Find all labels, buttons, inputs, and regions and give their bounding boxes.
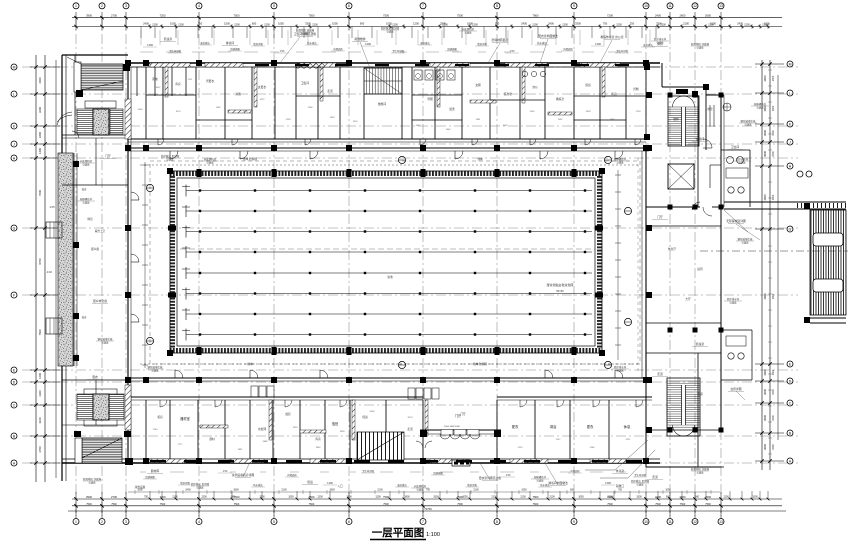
svg-text:器材库: 器材库 — [151, 469, 160, 473]
svg-text:1407: 1407 — [416, 125, 422, 127]
svg-text:钢化玻璃栏板: 钢化玻璃栏板 — [737, 237, 753, 241]
svg-text:1800: 1800 — [467, 22, 473, 26]
svg-text:卫生间详图: 卫生间详图 — [169, 49, 182, 53]
svg-text:L: L — [13, 92, 15, 96]
svg-text:8: 8 — [496, 4, 498, 8]
svg-text:5: 5 — [273, 520, 275, 524]
svg-text:内墙面砖: 内墙面砖 — [563, 47, 573, 51]
svg-text:池岸: 池岸 — [247, 362, 253, 366]
svg-text:钢化玻璃栏板: 钢化玻璃栏板 — [740, 119, 756, 123]
svg-text:器材室: 器材室 — [180, 416, 190, 421]
svg-text:13: 13 — [719, 520, 723, 524]
svg-text:水处理机房: 水处理机房 — [204, 157, 217, 161]
svg-text:750: 750 — [495, 22, 500, 26]
svg-text:1666: 1666 — [610, 119, 616, 121]
svg-text:楼梯间: 楼梯间 — [378, 102, 386, 106]
svg-text:男更衣: 男更衣 — [206, 79, 214, 83]
svg-text:值班: 值班 — [585, 83, 591, 87]
svg-text:走道: 走道 — [657, 372, 663, 376]
svg-text:J: J — [789, 140, 791, 144]
svg-text:J: J — [13, 142, 15, 146]
svg-text:1074: 1074 — [176, 111, 182, 113]
svg-text:泳池设备: 泳池设备 — [135, 485, 146, 489]
svg-text:1:50: 1:50 — [506, 474, 511, 477]
svg-text:内墙面砖: 内墙面砖 — [570, 469, 580, 473]
svg-text:1500: 1500 — [772, 444, 775, 450]
svg-text:1500: 1500 — [259, 496, 265, 499]
svg-text:10: 10 — [644, 520, 648, 524]
svg-text:1:50: 1:50 — [223, 470, 228, 473]
svg-text:3600: 3600 — [763, 369, 767, 375]
svg-text:2100: 2100 — [281, 489, 287, 492]
svg-text:值班室: 值班室 — [164, 37, 173, 41]
svg-text:7500: 7500 — [457, 13, 463, 17]
svg-text:7000: 7000 — [38, 190, 42, 196]
svg-text:6: 6 — [348, 520, 350, 524]
svg-text:1200: 1200 — [234, 23, 240, 26]
svg-text:器材: 器材 — [209, 437, 215, 441]
svg-text:面层做法: 面层做法 — [643, 43, 653, 47]
svg-text:1: 1 — [75, 4, 77, 8]
svg-text:1500: 1500 — [772, 389, 775, 395]
svg-text:前室: 前室 — [707, 107, 713, 111]
svg-text:教练室: 教练室 — [556, 97, 564, 101]
svg-text:7200: 7200 — [160, 13, 166, 17]
svg-text:3600: 3600 — [763, 293, 767, 299]
svg-text:1200: 1200 — [312, 23, 318, 26]
svg-text:7500: 7500 — [457, 503, 463, 506]
svg-text:3600: 3600 — [763, 130, 767, 136]
svg-text:7500: 7500 — [234, 503, 240, 506]
svg-text:3600: 3600 — [763, 415, 767, 421]
svg-text:L: L — [789, 91, 791, 95]
svg-text:G: G — [13, 226, 16, 230]
svg-text:1111: 1111 — [188, 79, 193, 81]
svg-text:防滑地砖 详建施: 防滑地砖 详建施 — [296, 28, 315, 32]
svg-text:3300: 3300 — [575, 22, 581, 26]
svg-text:1200: 1200 — [413, 22, 419, 26]
svg-text:600: 600 — [252, 22, 257, 26]
svg-text:一层平面图: 一层平面图 — [372, 527, 425, 539]
svg-text:1200: 1200 — [723, 496, 729, 499]
svg-text:面层做法: 面层做法 — [397, 483, 407, 487]
svg-text:12: 12 — [693, 520, 697, 524]
svg-text:900: 900 — [231, 496, 236, 499]
svg-text:4.05: 4.05 — [49, 205, 55, 209]
svg-text:7500: 7500 — [383, 495, 389, 499]
svg-text:无障碍扶手: 无障碍扶手 — [80, 197, 93, 201]
svg-text:墙身详图: 墙身详图 — [253, 42, 263, 46]
svg-text:7500: 7500 — [607, 503, 613, 506]
svg-text:7500: 7500 — [680, 503, 686, 506]
svg-text:台阶详图: 台阶详图 — [730, 387, 741, 391]
svg-text:2100: 2100 — [520, 496, 526, 499]
svg-text:1800: 1800 — [38, 132, 42, 138]
svg-text:3.900: 3.900 — [327, 482, 334, 485]
svg-text:3300: 3300 — [433, 496, 439, 499]
svg-text:池岸排水沟: 池岸排水沟 — [614, 365, 627, 369]
svg-text:控制: 控制 — [633, 87, 639, 91]
svg-text:2700: 2700 — [111, 13, 117, 17]
svg-text:1500: 1500 — [772, 415, 775, 421]
svg-text:3200: 3200 — [38, 107, 42, 113]
svg-text:大厅: 大厅 — [685, 297, 691, 301]
svg-text:1925: 1925 — [293, 427, 299, 429]
svg-text:1888: 1888 — [263, 441, 269, 443]
svg-text:2036: 2036 — [370, 411, 376, 413]
svg-text:1:50: 1:50 — [510, 50, 515, 53]
svg-text:1851: 1851 — [238, 449, 244, 451]
svg-text:2100: 2100 — [683, 22, 689, 26]
svg-text:门厅: 门厅 — [105, 154, 111, 158]
svg-text:库房: 库房 — [175, 82, 181, 86]
svg-text:墙身详图: 墙身详图 — [477, 42, 487, 46]
svg-text:疏散楼梯: 疏散楼梯 — [354, 37, 365, 41]
svg-text:防水做法: 防水做法 — [537, 41, 547, 45]
svg-text:库房: 库房 — [315, 437, 321, 441]
svg-text:盥洗: 盥洗 — [449, 107, 455, 111]
svg-text:门厅: 门厅 — [657, 215, 663, 219]
svg-text:池岸做法 见详图: 池岸做法 见详图 — [191, 482, 210, 486]
svg-text:池岸做法 见详图: 池岸做法 见详图 — [161, 154, 180, 158]
svg-text:1500: 1500 — [636, 496, 642, 499]
svg-text:内墙面砖: 内墙面砖 — [333, 47, 343, 51]
svg-text:1200: 1200 — [152, 23, 158, 26]
svg-text:3600: 3600 — [763, 444, 767, 450]
svg-text:1050: 1050 — [170, 22, 176, 26]
svg-text:1777: 1777 — [178, 444, 184, 446]
svg-text:内墙面砖: 内墙面砖 — [287, 473, 297, 477]
svg-text:防滑地砖面层: 防滑地砖面层 — [492, 38, 509, 42]
svg-text:2400: 2400 — [185, 489, 191, 492]
svg-text:3.900: 3.900 — [365, 43, 372, 46]
svg-text:900: 900 — [360, 22, 365, 26]
svg-text:7200: 7200 — [160, 495, 166, 499]
svg-text:防水做法: 防水做法 — [307, 41, 317, 45]
svg-text:1500: 1500 — [224, 22, 230, 26]
svg-text:女更衣: 女更衣 — [258, 85, 266, 89]
svg-text:1:100: 1:100 — [426, 532, 440, 538]
svg-text:1037: 1037 — [156, 87, 162, 89]
svg-text:7500: 7500 — [383, 503, 389, 506]
svg-text:泳池: 泳池 — [387, 275, 393, 279]
svg-text:无障碍扶手: 无障碍扶手 — [754, 102, 767, 106]
svg-text:1200: 1200 — [264, 23, 270, 26]
svg-text:2600: 2600 — [705, 13, 711, 17]
svg-text:水处理机房: 水处理机房 — [462, 27, 475, 31]
svg-text:2400: 2400 — [737, 22, 743, 26]
svg-text:1185: 1185 — [243, 111, 248, 113]
svg-text:2400: 2400 — [655, 495, 661, 499]
svg-text:1962: 1962 — [316, 447, 322, 449]
svg-text:更衣: 更衣 — [92, 375, 98, 379]
svg-text:1333: 1333 — [330, 117, 336, 119]
svg-text:7200: 7200 — [607, 13, 613, 17]
svg-text:1500: 1500 — [772, 105, 775, 111]
svg-text:卫生间: 卫生间 — [301, 81, 309, 85]
svg-text:走道: 走道 — [652, 475, 658, 479]
svg-text:防滑地砖 详建施: 防滑地砖 详建施 — [83, 477, 102, 481]
svg-text:10: 10 — [644, 4, 648, 8]
svg-text:1800: 1800 — [329, 489, 335, 492]
svg-text:750: 750 — [144, 496, 149, 499]
svg-text:2100: 2100 — [549, 496, 555, 499]
svg-text:F: F — [13, 293, 15, 297]
svg-text:7: 7 — [422, 4, 424, 8]
svg-text:1481: 1481 — [476, 119, 482, 121]
svg-text:1800: 1800 — [346, 496, 352, 499]
svg-text:2400: 2400 — [521, 22, 527, 26]
svg-text:750: 750 — [426, 489, 431, 492]
svg-text:4: 4 — [198, 4, 200, 8]
svg-text:疏散口: 疏散口 — [616, 484, 624, 488]
svg-text:2700: 2700 — [111, 495, 117, 499]
svg-text:2221: 2221 — [626, 439, 632, 441]
svg-text:7500: 7500 — [309, 495, 315, 499]
svg-text:2100: 2100 — [491, 496, 497, 499]
svg-text:2: 2 — [101, 520, 103, 524]
svg-text:G: G — [789, 227, 792, 231]
svg-text:卫生间详图: 卫生间详图 — [616, 49, 629, 53]
svg-text:7500: 7500 — [38, 329, 42, 335]
svg-text:750: 750 — [603, 22, 608, 26]
svg-text:坡道: 坡道 — [82, 315, 87, 319]
svg-text:1200: 1200 — [616, 23, 622, 26]
svg-text:1500: 1500 — [772, 194, 775, 200]
svg-text:2184: 2184 — [590, 447, 596, 449]
svg-text:观众休息廊: 观众休息廊 — [93, 299, 107, 303]
svg-text:更衣室详图见建施: 更衣室详图见建施 — [479, 476, 502, 480]
svg-text:1555: 1555 — [530, 111, 536, 113]
svg-text:门厅: 门厅 — [460, 412, 466, 416]
svg-text:3600: 3600 — [763, 194, 767, 200]
svg-text:3: 3 — [125, 520, 127, 524]
svg-text:13: 13 — [719, 4, 723, 8]
svg-text:墙身详图: 墙身详图 — [180, 481, 190, 485]
svg-text:7500: 7500 — [383, 13, 389, 17]
svg-text:1500: 1500 — [772, 151, 775, 157]
svg-text:池岸 防滑砖: 池岸 防滑砖 — [243, 157, 257, 161]
svg-text:1200: 1200 — [744, 23, 750, 26]
svg-text:1703: 1703 — [636, 111, 642, 113]
svg-text:2300: 2300 — [38, 390, 42, 396]
svg-text:1259: 1259 — [286, 119, 292, 121]
svg-text:卫生间: 卫生间 — [731, 145, 740, 149]
svg-text:值班: 值班 — [307, 480, 313, 484]
svg-text:1444: 1444 — [446, 129, 452, 131]
svg-text:1050: 1050 — [278, 22, 284, 26]
svg-text:池岸 防滑砖: 池岸 防滑砖 — [473, 362, 487, 366]
svg-text:9: 9 — [573, 4, 575, 8]
svg-text:6: 6 — [348, 4, 350, 8]
svg-text:1500: 1500 — [772, 293, 775, 299]
svg-text:防水做法: 防水做法 — [540, 483, 550, 487]
svg-text:50×50: 50×50 — [556, 289, 564, 293]
svg-text:防水做法: 防水做法 — [253, 483, 263, 487]
svg-text:7500: 7500 — [309, 13, 315, 17]
svg-text:6700: 6700 — [38, 258, 42, 264]
svg-text:钢化玻璃栏板: 钢化玻璃栏板 — [147, 365, 163, 369]
svg-text:2073: 2073 — [408, 417, 414, 419]
svg-text:值班: 值班 — [332, 421, 339, 426]
svg-text:池岸排水沟: 池岸排水沟 — [654, 37, 667, 41]
svg-text:1500: 1500 — [752, 496, 758, 499]
svg-text:2700: 2700 — [38, 446, 42, 452]
svg-text:游泳池贴白色泳池砖: 游泳池贴白色泳池砖 — [546, 282, 573, 287]
svg-text:7500: 7500 — [86, 503, 92, 506]
svg-text:3900: 3900 — [86, 495, 92, 499]
svg-text:1592: 1592 — [558, 119, 564, 121]
svg-text:2147: 2147 — [556, 439, 562, 441]
svg-text:3300: 3300 — [305, 22, 311, 26]
svg-text:池岸做法 见详图: 池岸做法 见详图 — [381, 26, 400, 30]
svg-text:走道: 走道 — [407, 427, 413, 431]
svg-text:水处理机房: 水处理机房 — [80, 159, 93, 163]
svg-text:防滑地砖 详建施: 防滑地砖 详建施 — [691, 42, 710, 46]
svg-text:男厕: 男厕 — [427, 97, 433, 101]
svg-text:600: 600 — [570, 489, 575, 492]
svg-text:值班室: 值班室 — [696, 342, 705, 346]
svg-text:1222: 1222 — [260, 99, 266, 101]
svg-text:1200: 1200 — [38, 373, 42, 379]
svg-text:3300: 3300 — [440, 22, 446, 26]
svg-text:休息: 休息 — [87, 217, 93, 221]
svg-text:1:50: 1:50 — [280, 50, 285, 53]
svg-text:加药: 加药 — [285, 412, 291, 416]
svg-text:3600: 3600 — [763, 389, 767, 395]
svg-text:750: 750 — [630, 22, 635, 26]
svg-text:更衣室地面做法: 更衣室地面做法 — [538, 34, 558, 38]
svg-text:3: 3 — [125, 4, 127, 8]
svg-text:淋浴: 淋浴 — [550, 424, 557, 429]
svg-text:M: M — [789, 62, 792, 66]
svg-text:无障碍扶手: 无障碍扶手 — [614, 157, 627, 161]
svg-text:3600: 3600 — [763, 75, 767, 81]
svg-text:1296: 1296 — [308, 107, 314, 109]
svg-text:配电: 配电 — [152, 77, 158, 81]
svg-text:2400: 2400 — [38, 77, 42, 83]
svg-text:池岸排水沟: 池岸排水沟 — [727, 297, 740, 301]
svg-text:观众廊: 观众廊 — [91, 247, 99, 251]
svg-text:1148: 1148 — [216, 107, 221, 109]
svg-text:3300: 3300 — [607, 496, 613, 499]
svg-text:见建施图: 见建施图 — [230, 47, 240, 51]
svg-text:楼梯: 楼梯 — [673, 117, 679, 121]
svg-text:2600: 2600 — [705, 495, 711, 499]
svg-text:1000: 1000 — [138, 109, 144, 111]
svg-text:淋浴间地面做法: 淋浴间地面做法 — [548, 481, 568, 485]
svg-text:1200: 1200 — [392, 23, 398, 26]
svg-text:走道: 走道 — [697, 392, 703, 396]
svg-text:1050: 1050 — [665, 489, 671, 492]
svg-text:3.900: 3.900 — [147, 44, 154, 47]
svg-text:7500: 7500 — [309, 503, 315, 506]
svg-text:11: 11 — [668, 4, 672, 8]
svg-text:1500 1800 1500: 1500 1800 1500 — [444, 426, 461, 428]
svg-text:12: 12 — [693, 4, 697, 8]
svg-text:1200: 1200 — [532, 23, 538, 26]
svg-text:5: 5 — [273, 4, 275, 8]
svg-text:医务室: 医务室 — [504, 92, 512, 96]
svg-text:2600: 2600 — [680, 495, 686, 499]
svg-text:见建施图: 见建施图 — [433, 471, 443, 475]
svg-text:3900: 3900 — [86, 13, 92, 17]
svg-text:1400: 1400 — [38, 148, 42, 154]
svg-text:1200: 1200 — [375, 496, 381, 499]
svg-text:淋浴: 淋浴 — [235, 92, 241, 96]
svg-text:1200: 1200 — [562, 23, 568, 26]
svg-text:库房: 库房 — [611, 92, 617, 96]
svg-text:1: 1 — [75, 520, 77, 524]
svg-text:更衣: 更衣 — [512, 424, 519, 429]
svg-text:1050: 1050 — [462, 496, 468, 499]
svg-text:7500: 7500 — [705, 503, 711, 506]
svg-text:1800: 1800 — [233, 489, 239, 492]
svg-text:4: 4 — [198, 520, 200, 524]
svg-text:3300: 3300 — [656, 22, 662, 26]
svg-text:淋浴间: 淋浴间 — [226, 41, 235, 45]
svg-text:休息厅: 休息厅 — [668, 247, 676, 251]
svg-text:1740: 1740 — [153, 429, 159, 431]
svg-text:面层做法: 面层做法 — [420, 41, 430, 45]
svg-text:1050: 1050 — [578, 496, 584, 499]
svg-text:卫生间详图: 卫生间详图 — [634, 473, 647, 477]
svg-text:2110: 2110 — [518, 447, 523, 449]
svg-text:走道: 走道 — [327, 89, 333, 93]
svg-text:更衣: 更衣 — [587, 424, 594, 429]
svg-text:休息: 休息 — [624, 424, 631, 429]
svg-text:11: 11 — [668, 520, 672, 524]
svg-text:1500: 1500 — [764, 22, 770, 26]
svg-text:1500: 1500 — [772, 130, 775, 136]
svg-text:1370: 1370 — [353, 121, 359, 123]
svg-text:7: 7 — [422, 520, 424, 524]
svg-text:-0.02: -0.02 — [46, 270, 52, 274]
svg-text:M: M — [13, 65, 16, 69]
svg-text:面层做法: 面层做法 — [200, 41, 210, 45]
svg-text:2400: 2400 — [655, 13, 661, 17]
svg-text:池岸排水沟: 池岸排水沟 — [736, 157, 749, 161]
svg-text:休息室: 休息室 — [616, 469, 625, 473]
svg-text:女厕: 女厕 — [475, 83, 481, 87]
svg-text:2400: 2400 — [548, 22, 554, 26]
svg-text:1500: 1500 — [772, 369, 775, 375]
svg-text:水处理机房: 水处理机房 — [414, 484, 427, 488]
svg-text:7800: 7800 — [533, 13, 539, 17]
svg-text:7500: 7500 — [111, 503, 117, 506]
svg-text:无障碍扶手: 无障碍扶手 — [534, 475, 547, 479]
svg-text:1050: 1050 — [288, 496, 294, 499]
svg-text:1518: 1518 — [503, 125, 509, 127]
svg-text:坡道: 坡道 — [82, 187, 87, 191]
svg-text:入口: 入口 — [337, 484, 343, 488]
svg-text:2600: 2600 — [680, 13, 686, 17]
svg-text:看台上空: 看台上空 — [95, 229, 106, 233]
svg-text:卫生间详图: 卫生间详图 — [392, 49, 405, 53]
svg-text:楼梯间: 楼梯间 — [696, 137, 705, 141]
svg-text:1200: 1200 — [317, 496, 323, 499]
svg-text:1050: 1050 — [332, 22, 338, 26]
svg-text:1200: 1200 — [472, 23, 478, 26]
svg-text:2400: 2400 — [143, 22, 149, 26]
svg-text:值班: 值班 — [362, 415, 368, 419]
svg-text:1200: 1200 — [178, 23, 184, 26]
svg-text:9: 9 — [573, 520, 575, 524]
svg-text:8: 8 — [496, 520, 498, 524]
svg-text:7500: 7500 — [160, 503, 166, 506]
svg-text:900: 900 — [695, 496, 700, 499]
svg-text:70700: 70700 — [424, 507, 432, 511]
